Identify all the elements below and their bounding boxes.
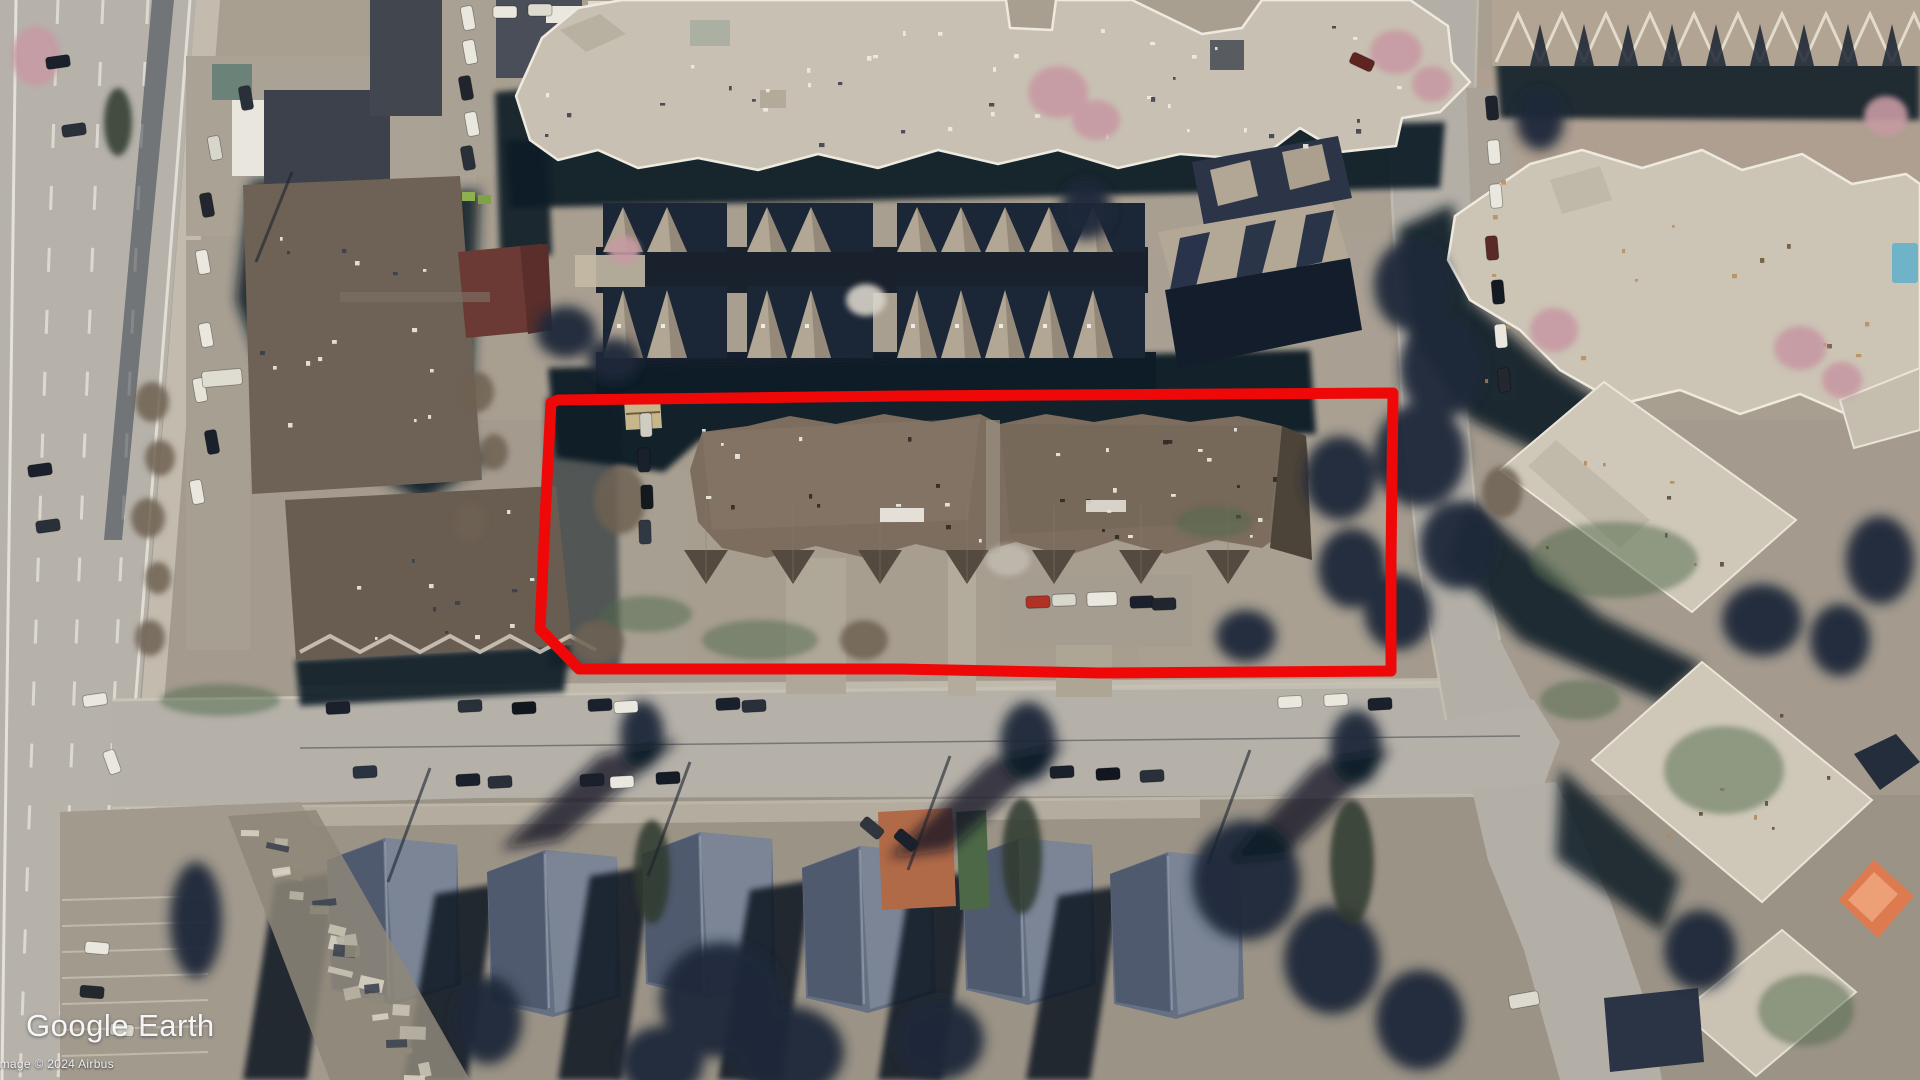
townhouse-row-top-right <box>1492 0 1920 66</box>
satellite-imagery-canvas[interactable] <box>0 0 1920 1080</box>
google-earth-viewport: Google Earth Image © 2024 Airbus <box>0 0 1920 1080</box>
